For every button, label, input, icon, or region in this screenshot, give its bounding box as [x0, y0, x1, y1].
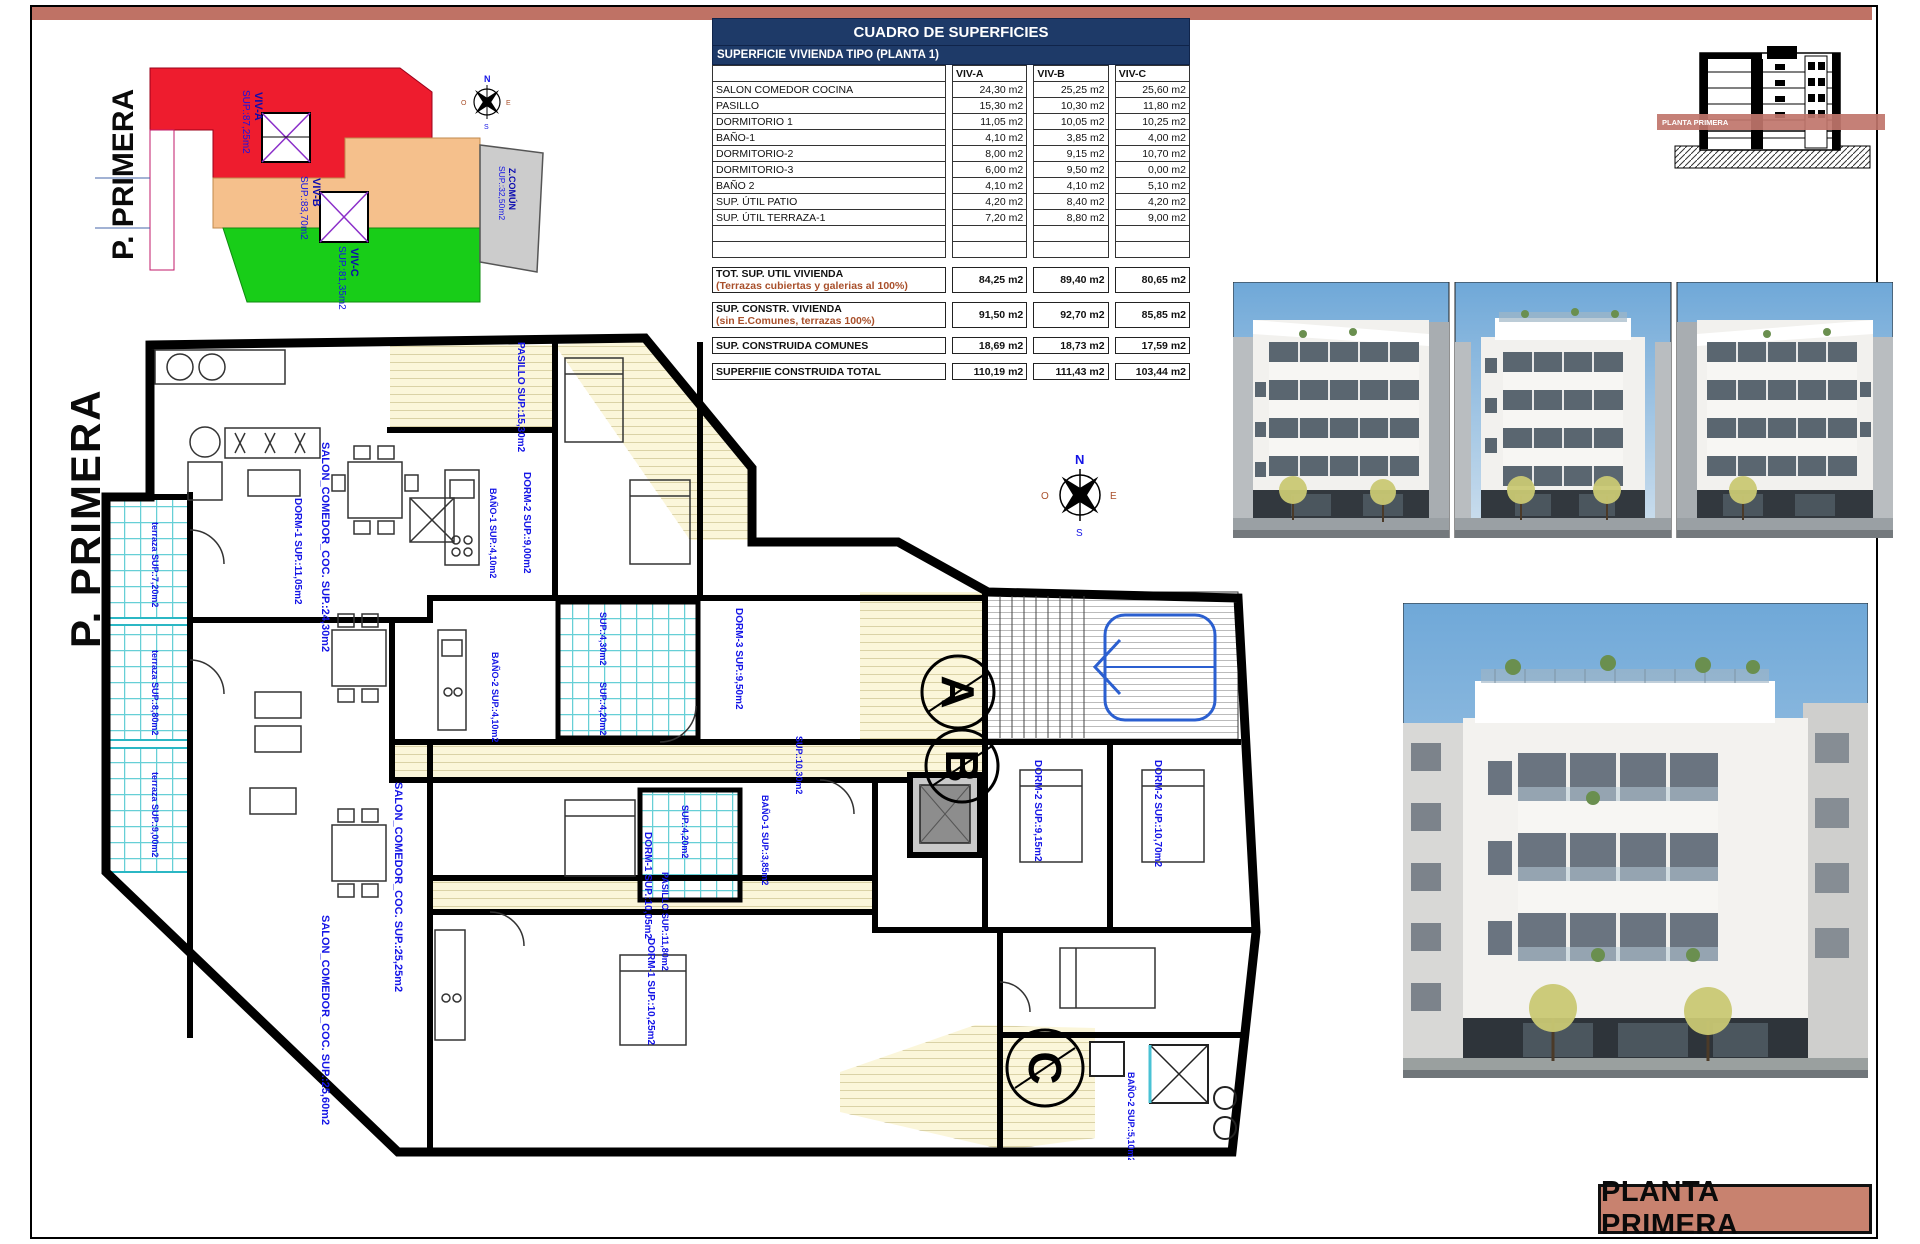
table-row: DORMITORIO-36,00 m29,50 m20,00 m2 [712, 162, 1190, 178]
room-label: SUP.:4,20m2 [680, 805, 690, 858]
table-cell [712, 242, 946, 258]
room-label: SUP.:10,30m2 [794, 736, 804, 794]
key-plan: P. PRIMERA VIV-A SUP.:87,25m2 VIV-B SUP.… [95, 50, 565, 322]
patio-a [558, 602, 698, 738]
service-strip [150, 130, 174, 270]
table-cell: 25,60 m2 [1115, 82, 1190, 98]
svg-text:VIV-A: VIV-A [252, 92, 264, 121]
table-cell [712, 293, 1190, 302]
road [1403, 1070, 1868, 1078]
table-cell: VIV-B [1033, 65, 1108, 82]
svg-text:VIV-B: VIV-B [310, 178, 322, 207]
svg-text:SUP.:32,50m2: SUP.:32,50m2 [497, 166, 507, 220]
room-label: DORM-3 SUP.:9,50m2 [733, 608, 744, 710]
pasillo-b-hatch [392, 742, 985, 780]
table-cell: BAÑO-1 [712, 130, 946, 146]
table-cell: VIV-A [952, 65, 1027, 82]
table-cell: 6,00 m2 [952, 162, 1027, 178]
table-cell: 10,30 m2 [1033, 98, 1108, 114]
svg-text:S: S [1076, 528, 1083, 539]
svg-text:E: E [506, 100, 511, 107]
room-label: DORM-2 SUP.:10,70m2 [1152, 760, 1163, 868]
table-cell: 9,00 m2 [1115, 210, 1190, 226]
svg-text:S: S [484, 124, 489, 131]
room-label: terraza SUP.:8,80m2 [150, 650, 160, 735]
svg-text:B: B [936, 749, 988, 782]
table-cell: 9,15 m2 [1033, 146, 1108, 162]
room-label: DORM-1 SUP.:11,05m2 [292, 498, 303, 605]
table-cell: 9,50 m2 [1033, 162, 1108, 178]
svg-text:SUP.:83,70m2: SUP.:83,70m2 [298, 176, 309, 240]
room-label: terraza SUP.:7,20m2 [150, 522, 160, 607]
table-row: PASILLO15,30 m210,30 m211,80 m2 [712, 98, 1190, 114]
table-row: SUP. ÚTIL TERRAZA-17,20 m28,80 m29,00 m2 [712, 210, 1190, 226]
pasillo-vertical-hatch [860, 592, 985, 742]
table-cell: 85,85 m2 [1115, 302, 1190, 328]
table-summary-row: TOT. SUP. UTIL VIVIENDA(Terrazas cubiert… [712, 267, 1190, 293]
table-cell: 8,00 m2 [952, 146, 1027, 162]
table-cell: 24,30 m2 [952, 82, 1027, 98]
svg-text:VIV-C: VIV-C [348, 248, 360, 277]
table-cell [712, 226, 946, 242]
table-cell: 4,20 m2 [1115, 194, 1190, 210]
surfaces-table: CUADRO DE SUPERFICIES SUPERFICIE VIVIEND… [712, 18, 1190, 380]
table-cell: 25,25 m2 [1033, 82, 1108, 98]
table-cell: TOT. SUP. UTIL VIVIENDA(Terrazas cubiert… [712, 267, 946, 293]
table-cell [712, 258, 1190, 267]
table-subtitle: SUPERFICIE VIVIENDA TIPO (PLANTA 1) [712, 46, 1190, 65]
table-cell: PASILLO [712, 98, 946, 114]
table-title: CUADRO DE SUPERFICIES [712, 18, 1190, 46]
svg-text:N: N [484, 74, 491, 84]
table-cell [1033, 226, 1108, 242]
table-cell: 80,65 m2 [1115, 267, 1190, 293]
table-cell [1033, 242, 1108, 258]
building-render-3 [1677, 282, 1893, 538]
table-cell: DORMITORIO-3 [712, 162, 946, 178]
room-label: BAÑO-2 SUP.:4,10m2 [490, 652, 500, 742]
table-row: SUP. ÚTIL PATIO4,20 m28,40 m24,20 m2 [712, 194, 1190, 210]
building-section: PLANTA PRIMERA [1655, 28, 1887, 176]
section-band-label: PLANTA PRIMERA [1662, 118, 1729, 127]
table-cell: SUP. ÚTIL PATIO [712, 194, 946, 210]
room-label: BAÑO-1 SUP.:3,85m2 [760, 795, 770, 885]
table-cell: 91,50 m2 [952, 302, 1027, 328]
table-cell: 4,10 m2 [952, 130, 1027, 146]
table-cell: SUP. ÚTIL TERRAZA-1 [712, 210, 946, 226]
table-row: DORMITORIO 111,05 m210,05 m210,25 m2 [712, 114, 1190, 130]
room-label: SALON_COMEDOR_COC. SUP.:24,30m2 [319, 442, 331, 652]
terrace-a [108, 497, 188, 618]
svg-text:Z.COMÚN: Z.COMÚN [507, 168, 518, 210]
neighbor-left [1403, 723, 1463, 1078]
title-block-label: PLANTA PRIMERA [1601, 1176, 1857, 1242]
table-cell: 10,05 m2 [1033, 114, 1108, 130]
table-summary-row: SUP. CONSTR. VIVIENDA(sin E.Comunes, ter… [712, 302, 1190, 328]
table-cell [712, 65, 946, 82]
table-cell: 4,20 m2 [952, 194, 1027, 210]
room-label: PASILLO SUP.:11,80m2 [660, 872, 670, 971]
building-renders-row [1233, 282, 1893, 538]
table-cell: 4,00 m2 [1115, 130, 1190, 146]
room-label: DORM-2 SUP.:9,15m2 [1032, 760, 1043, 862]
room-label: BAÑO-2 SUP.:5,10m2 [1126, 1072, 1136, 1160]
table-cell: 89,40 m2 [1033, 267, 1108, 293]
svg-text:N: N [1075, 452, 1084, 467]
table-cell: DORMITORIO-2 [712, 146, 946, 162]
compass-icon: N S E O [1041, 452, 1117, 539]
table-cell [952, 226, 1027, 242]
table-row: SALON COMEDOR COCINA24,30 m225,25 m225,6… [712, 82, 1190, 98]
table-cell: 11,05 m2 [952, 114, 1027, 130]
table-cell [1115, 226, 1190, 242]
main-building [1463, 655, 1808, 1060]
table-cell: 15,30 m2 [952, 98, 1027, 114]
table-cell: 92,70 m2 [1033, 302, 1108, 328]
table-cell: DORMITORIO 1 [712, 114, 946, 130]
room-label: SUP.:4,30m2 [598, 612, 608, 665]
svg-text:O: O [1041, 491, 1049, 502]
table-cell: VIV-C [1115, 65, 1190, 82]
room-label: DORM-1 SUP.:10,25m2 [645, 938, 656, 1046]
title-block: PLANTA PRIMERA [1598, 1184, 1872, 1234]
svg-text:C: C [1019, 1051, 1071, 1084]
table-cell [1115, 242, 1190, 258]
room-label: SUP.:4,20m2 [598, 682, 608, 735]
table-row: DORMITORIO-28,00 m29,15 m210,70 m2 [712, 146, 1190, 162]
table-cell: 5,10 m2 [1115, 178, 1190, 194]
room-label: BAÑO-1 SUP.:4,10m2 [488, 488, 498, 578]
table-row: BAÑO-14,10 m23,85 m24,00 m2 [712, 130, 1190, 146]
table-cell: 10,70 m2 [1115, 146, 1190, 162]
stair-box-1 [262, 113, 310, 162]
table-cell: 10,25 m2 [1115, 114, 1190, 130]
table-cell [952, 242, 1027, 258]
table-cell: SUP. CONSTR. VIVIENDA(sin E.Comunes, ter… [712, 302, 946, 328]
svg-text:E: E [1110, 491, 1117, 502]
terrace-b [108, 625, 188, 740]
room-label: SALON_COMEDOR_COC. SUP.:25,25m2 [392, 782, 404, 992]
table-cell: 7,20 m2 [952, 210, 1027, 226]
drawing-sheet: P. PRIMERA VIV-A SUP.:87,25m2 VIV-B SUP.… [0, 0, 1920, 1244]
key-plan-title: P. PRIMERA [107, 89, 140, 260]
svg-text:A: A [932, 675, 984, 708]
elevator-box-1 [320, 192, 368, 242]
table-cell: 8,40 m2 [1033, 194, 1108, 210]
room-label: terraza SUP.:9,00m2 [150, 772, 160, 857]
terrace-c [108, 748, 188, 872]
svg-text:O: O [461, 100, 467, 107]
table-cell: SALON COMEDOR COCINA [712, 82, 946, 98]
terraces [108, 497, 188, 872]
room-label: SALON_COMEDOR_COC. SUP.:25,60m2 [319, 915, 331, 1125]
table-cell: 11,80 m2 [1115, 98, 1190, 114]
table-cell: 0,00 m2 [1115, 162, 1190, 178]
floor-plan: P. PRIMERA [60, 330, 1300, 1160]
svg-text:SUP.:81,35m2: SUP.:81,35m2 [336, 246, 347, 310]
table-cell: 8,80 m2 [1033, 210, 1108, 226]
building-render-large [1403, 603, 1868, 1078]
svg-text:SUP.:87,25m2: SUP.:87,25m2 [240, 90, 251, 154]
elevator [910, 775, 980, 855]
table-row: BAÑO 24,10 m24,10 m25,10 m2 [712, 178, 1190, 194]
table-cell: 4,10 m2 [1033, 178, 1108, 194]
table-cell: 4,10 m2 [952, 178, 1027, 194]
room-label: DORM-1 SUP.:10,05m2 [642, 832, 653, 940]
building-render-2 [1455, 282, 1671, 538]
table-cell: 84,25 m2 [952, 267, 1027, 293]
sidewalk [1403, 1058, 1868, 1070]
neighbor-right [1803, 703, 1868, 1078]
table-cell: 3,85 m2 [1033, 130, 1108, 146]
table-cell: BAÑO 2 [712, 178, 946, 194]
room-label: PASILLO SUP.:15,30m2 [515, 342, 526, 453]
room-label: DORM-2 SUP.:9,00m2 [521, 472, 532, 574]
compass-icon: N S E O [461, 74, 511, 131]
